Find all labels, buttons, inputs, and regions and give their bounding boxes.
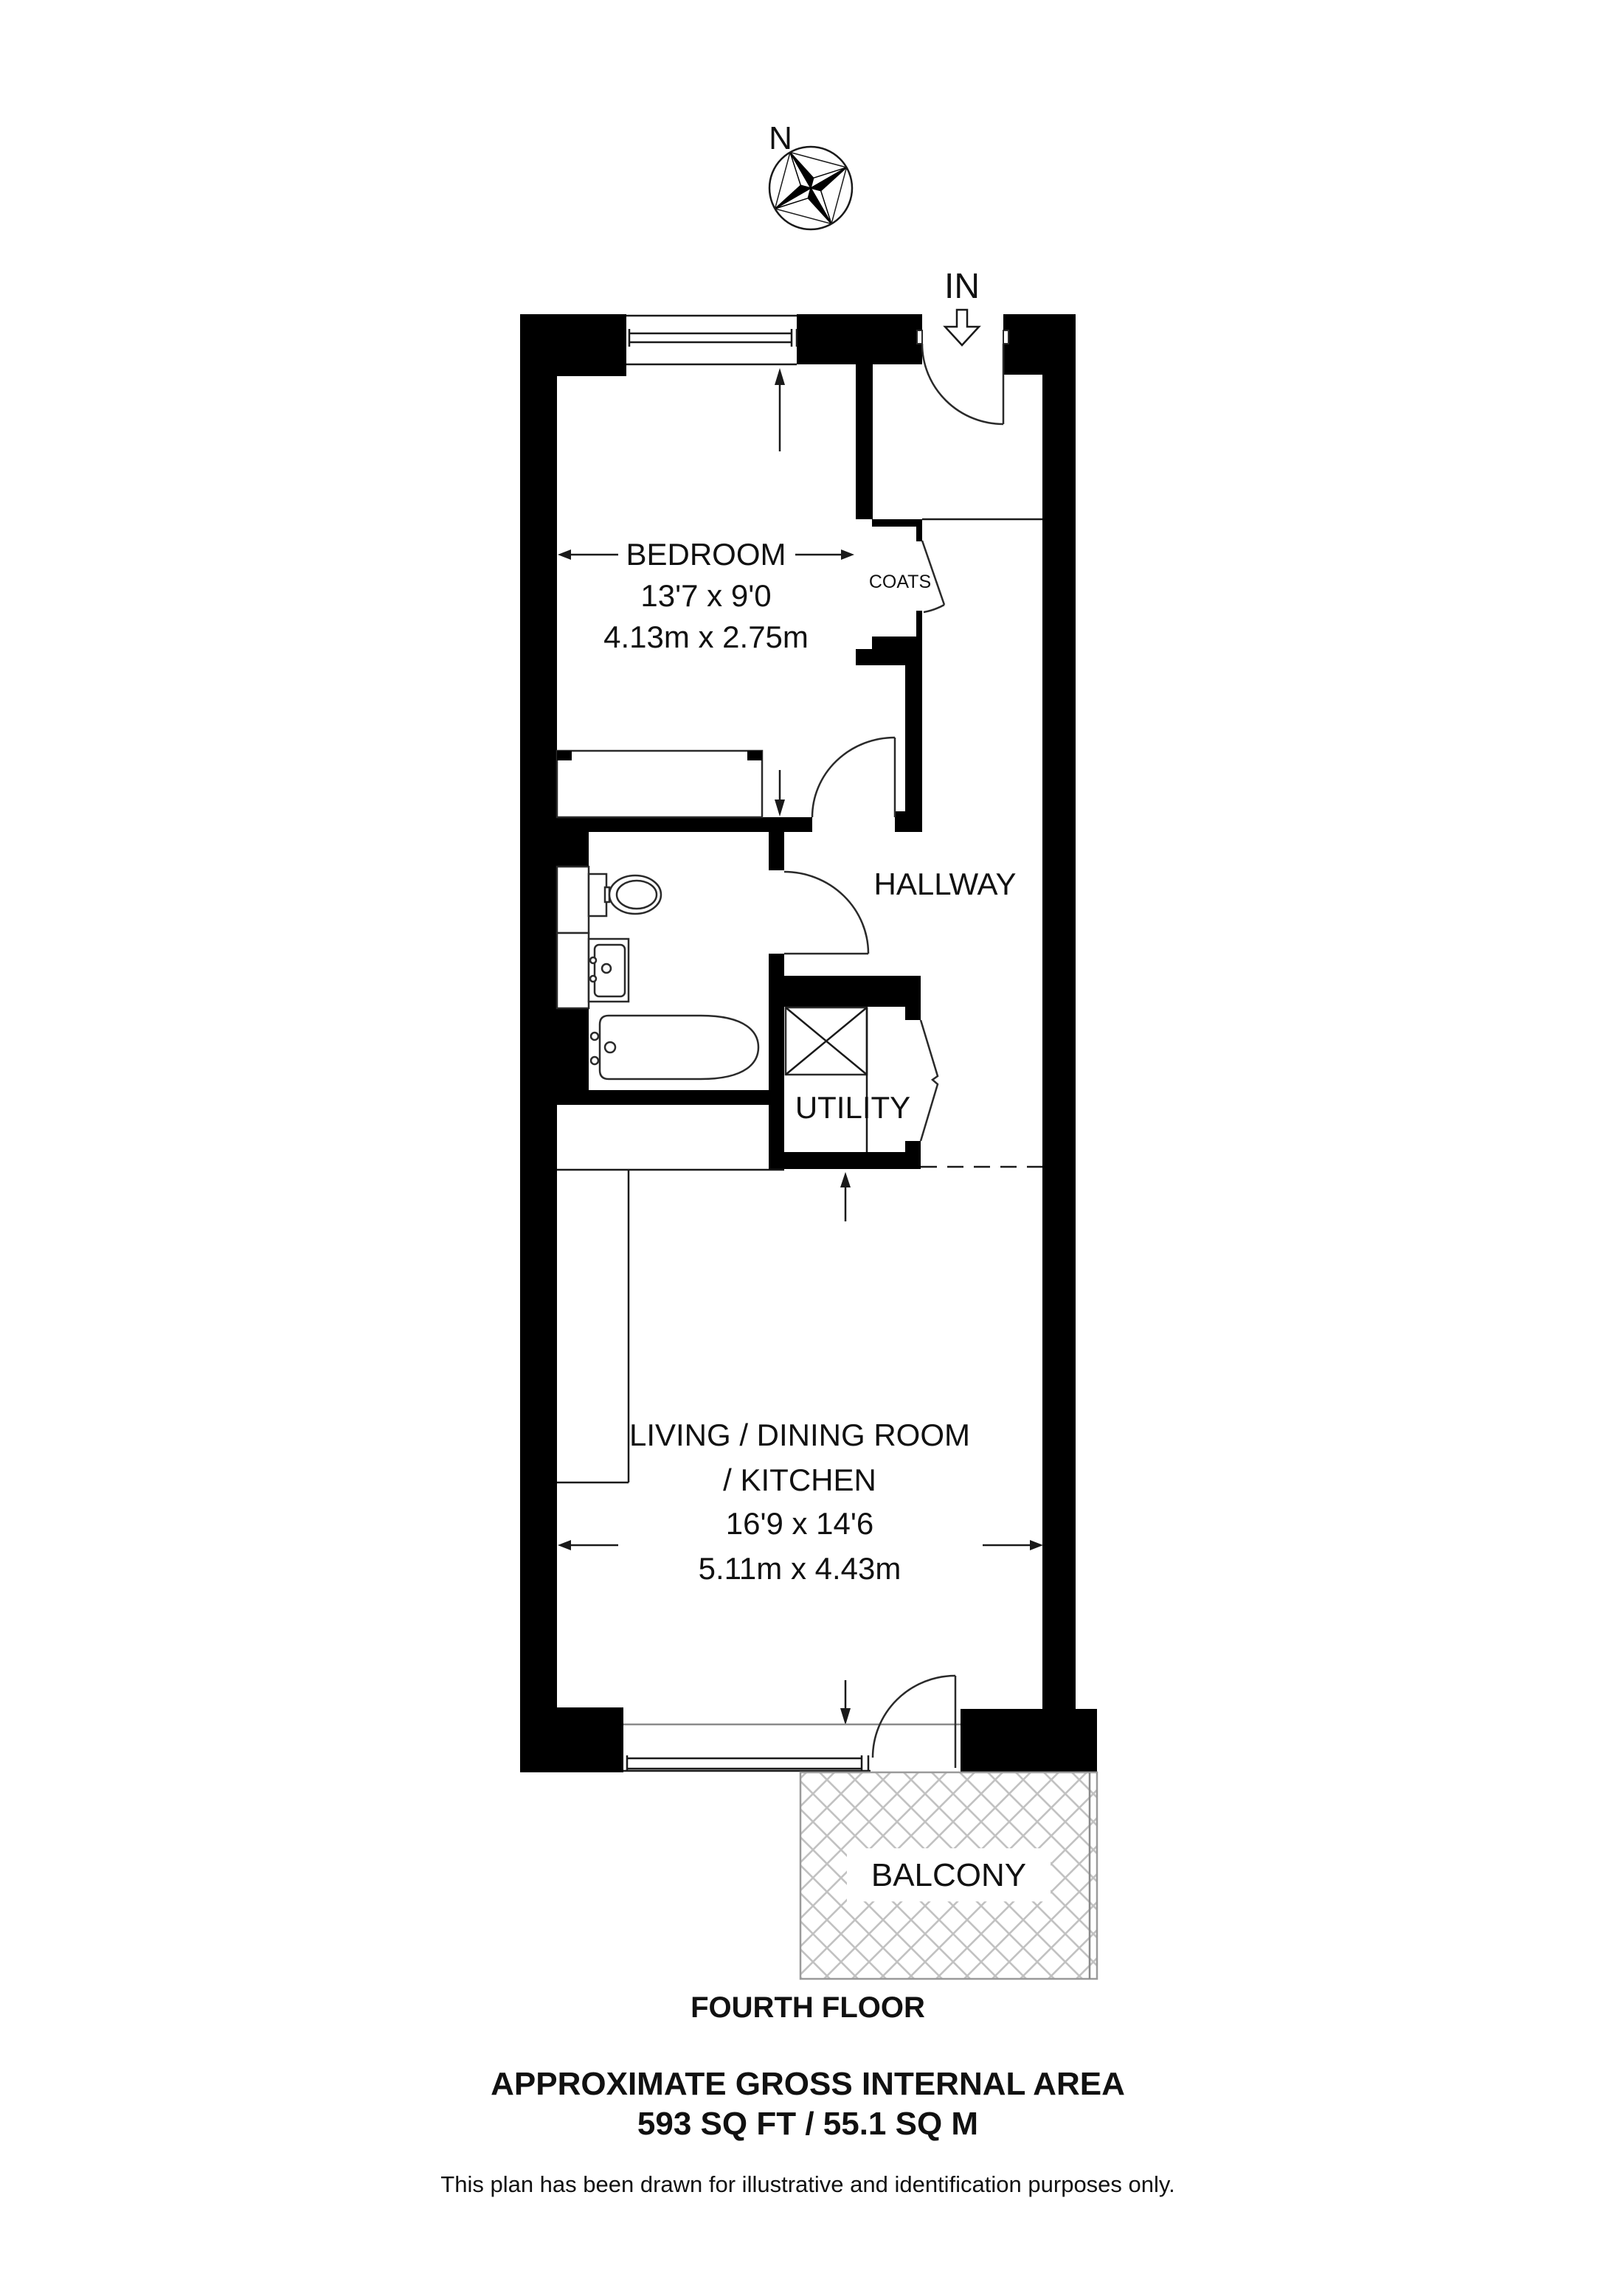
wall-bath-pier-bottom [557, 1008, 589, 1090]
utility-bifold-door [921, 1020, 938, 1141]
bedroom-door-arc [812, 738, 895, 817]
utility-label: UTILITY [795, 1090, 910, 1125]
living-window [623, 1724, 961, 1772]
balcony-door [873, 1676, 955, 1768]
bedroom: BEDROOM 13'7 x 9'0 4.13m x 2.75m [557, 316, 895, 817]
wall-coats-pillar-bottom [916, 611, 922, 638]
wall-utility-top [784, 976, 921, 1007]
bedroom-window [626, 316, 797, 364]
wall-right [1042, 314, 1076, 1709]
bathroom-door-arc [784, 872, 868, 954]
wall-bath-divider-stub [769, 832, 784, 870]
utility-arrow-head [840, 1172, 851, 1187]
bedroom-door [812, 738, 895, 817]
area-title: APPROXIMATE GROSS INTERNAL AREA [491, 2066, 1125, 2102]
living-label-line1: LIVING / DINING ROOM [629, 1418, 970, 1452]
wall-bath-hall-divider [769, 954, 784, 1169]
entry-door-jamb-right [1003, 330, 1008, 344]
balcony-label: BALCONY [871, 1857, 1026, 1893]
wall-below-coats [905, 654, 922, 832]
wall-left [520, 314, 557, 1772]
entry-door-jamb-left [917, 330, 922, 344]
toilet-icon [589, 874, 661, 916]
wall-bath-pier-top [557, 832, 589, 867]
wall-utility-bottom [784, 1152, 921, 1169]
entrance-arrow-icon [945, 310, 979, 345]
wall-utility-pillar-top [905, 1007, 921, 1020]
disclaimer-text: This plan has been drawn for illustrativ… [440, 2171, 1174, 2197]
wall-bath-bottom [557, 1090, 784, 1105]
living-size-metric: 5.11m x 4.43m [699, 1551, 902, 1586]
coats-closet: COATS [869, 541, 944, 612]
entrance-in-label: IN [944, 267, 980, 306]
entry-door-arc [922, 344, 1003, 424]
balcony: BALCONY [800, 1772, 1097, 1979]
wall-coats-top [872, 519, 922, 527]
bathroom-recess-top [557, 867, 589, 933]
wall-bottom-right [961, 1709, 1097, 1772]
wall-bedroom-bottom [557, 817, 812, 832]
area-value: 593 SQ FT / 55.1 SQ M [637, 2106, 978, 2142]
wall-top-middle [797, 314, 922, 364]
living-size-imperial: 16'9 x 14'6 [726, 1506, 874, 1541]
floor-plan-page: N IN [0, 0, 1623, 2296]
floor-plan-drawing: N IN [0, 0, 1623, 2296]
wall-bedroom-divider [856, 364, 873, 519]
coats-door-arc [924, 605, 944, 612]
wall-bedroom-door-jamb [895, 811, 922, 832]
bathroom-recess-bottom [557, 933, 589, 1008]
compass-north-label: N [769, 120, 792, 156]
bedroom-size-imperial: 13'7 x 9'0 [640, 578, 771, 613]
entrance: IN [917, 267, 1008, 424]
coats-label: COATS [869, 572, 931, 592]
bedroom-size-metric: 4.13m x 2.75m [603, 620, 809, 654]
wall-bottom-left [520, 1707, 623, 1772]
hallway-label: HALLWAY [874, 867, 1017, 901]
utility: UTILITY [786, 1007, 938, 1221]
bathtub-icon [591, 1016, 758, 1079]
compass-rose: N [755, 120, 868, 244]
bedroom-label: BEDROOM [626, 537, 786, 572]
living-label-line2: / KITCHEN [723, 1463, 876, 1497]
sink-icon [589, 939, 629, 1002]
balcony-door-arc [873, 1676, 955, 1758]
living-room: LIVING / DINING ROOM / KITCHEN 16'9 x 14… [557, 1167, 1043, 1772]
bedroom-wardrobe [557, 751, 762, 817]
footer: FOURTH FLOOR APPROXIMATE GROSS INTERNAL … [440, 1991, 1174, 2197]
wall-coats-pillar-top [916, 524, 922, 541]
floor-title: FOURTH FLOOR [691, 1991, 925, 2024]
wall-utility-pillar-bottom [905, 1141, 921, 1152]
